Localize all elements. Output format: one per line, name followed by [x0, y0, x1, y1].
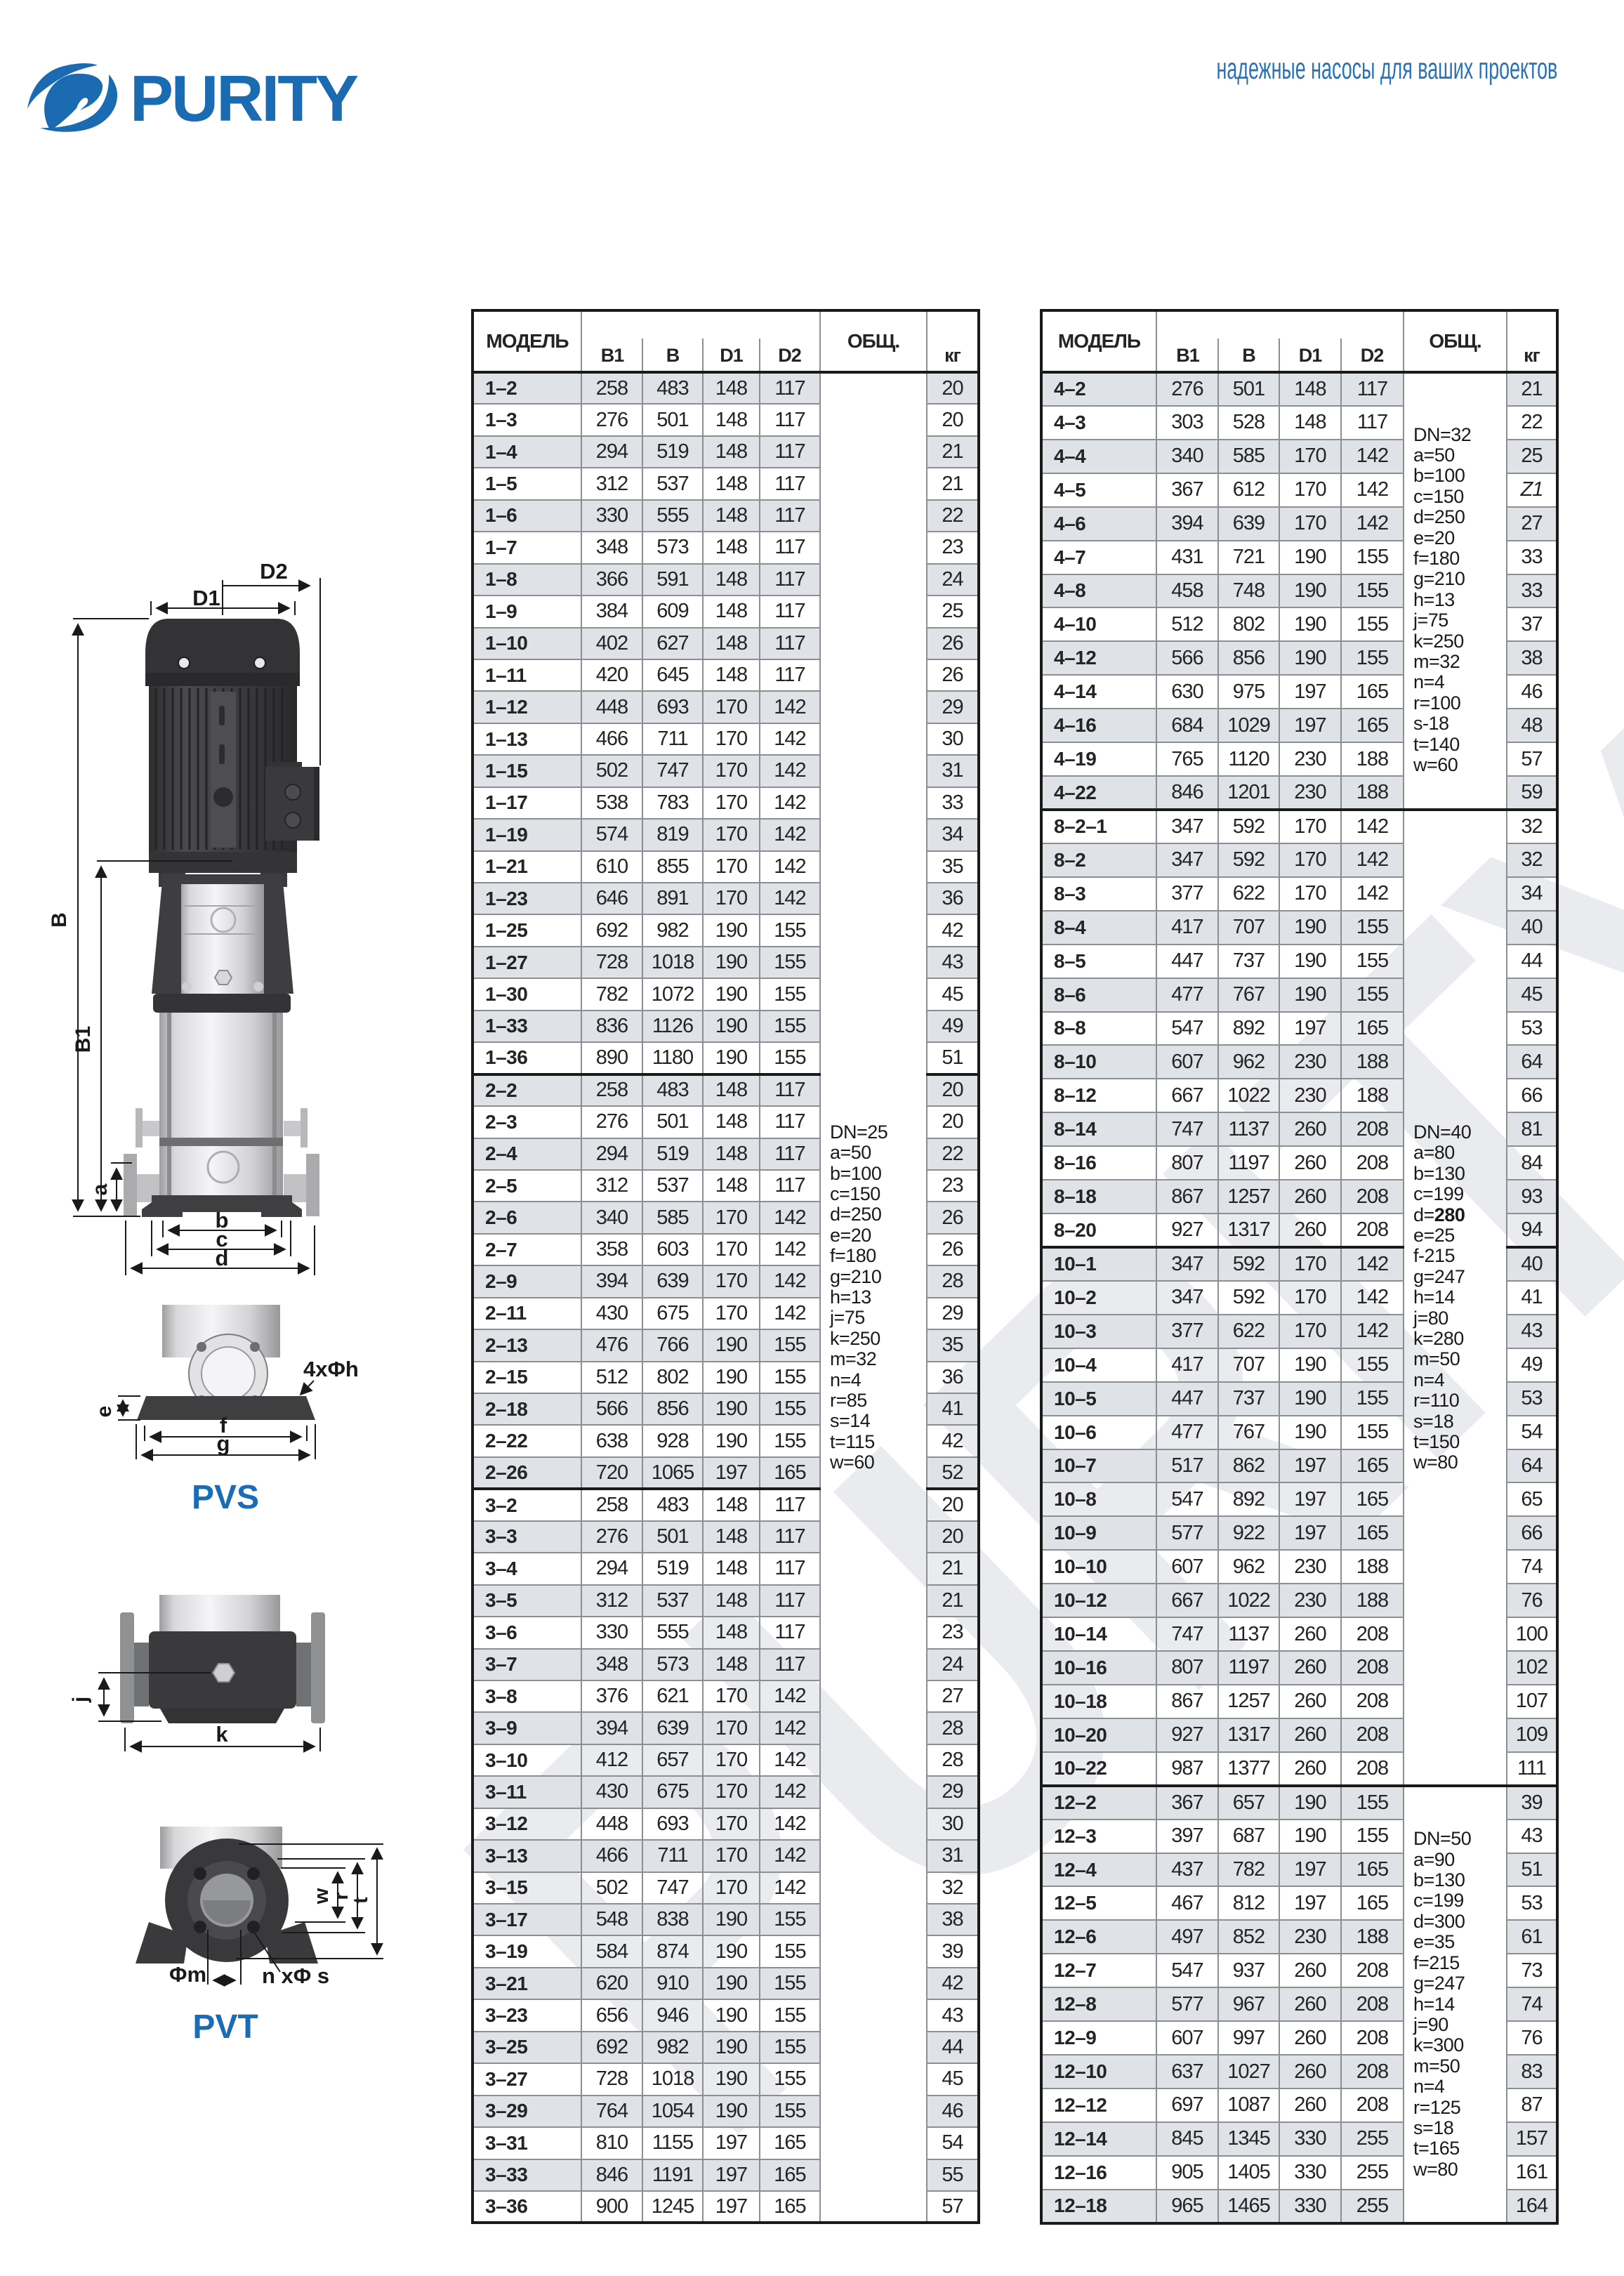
svg-text:4xΦh: 4xΦh [303, 1357, 359, 1381]
svg-text:B: B [48, 912, 71, 928]
svg-text:d: d [216, 1246, 229, 1270]
svg-text:n xΦ s: n xΦ s [262, 1963, 329, 1988]
svg-text:k: k [216, 1722, 228, 1747]
svg-text:t: t [350, 1897, 372, 1904]
svg-text:e: e [93, 1406, 116, 1418]
svg-text:B1: B1 [72, 1026, 95, 1053]
svg-text:PVS: PVS [192, 1479, 259, 1516]
svg-text:PVT: PVT [192, 2008, 258, 2046]
svg-text:D2: D2 [260, 559, 288, 584]
svg-text:g: g [217, 1431, 230, 1456]
svg-text:j: j [69, 1697, 92, 1703]
svg-text:D1: D1 [192, 586, 220, 610]
svg-text:Φm: Φm [169, 1962, 206, 1987]
svg-text:a: a [88, 1183, 112, 1195]
